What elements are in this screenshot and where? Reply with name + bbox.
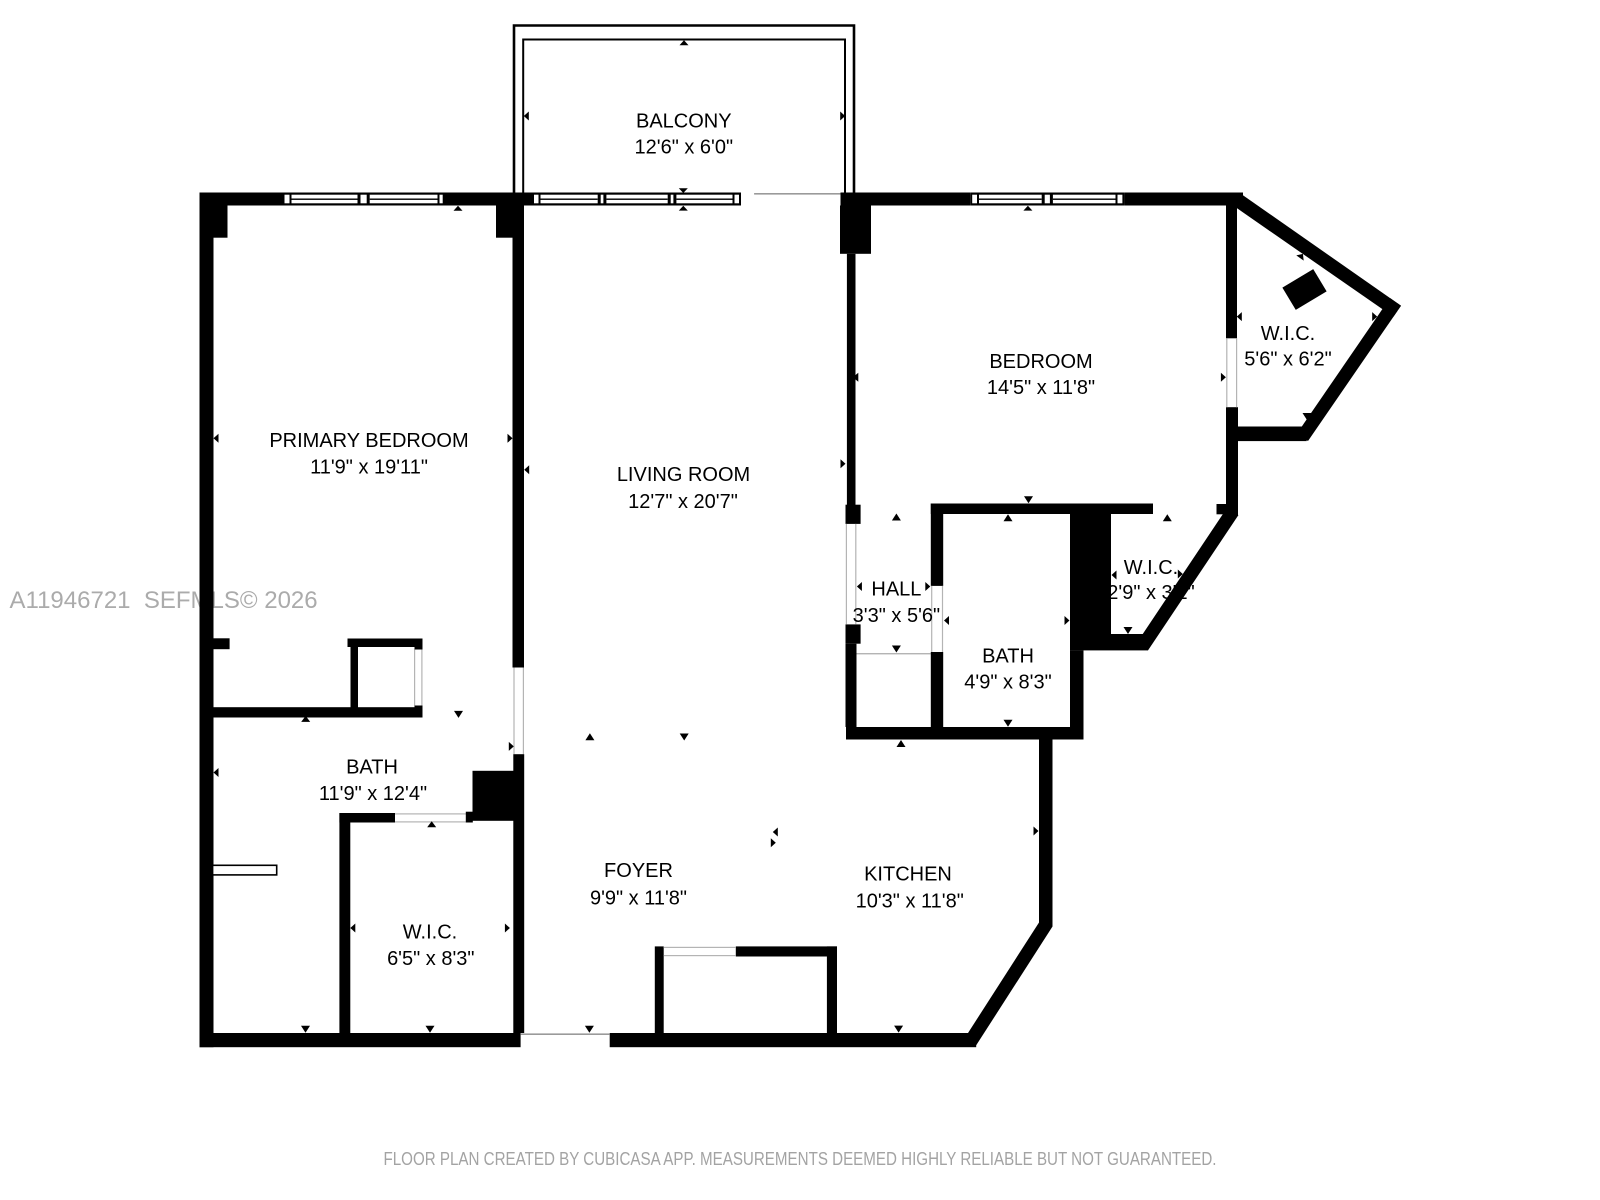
svg-text:PRIMARY BEDROOM: PRIMARY BEDROOM xyxy=(269,430,468,452)
svg-text:10'3" x 11'8": 10'3" x 11'8" xyxy=(856,890,964,912)
svg-text:5'6" x 6'2": 5'6" x 6'2" xyxy=(1244,349,1331,371)
svg-text:HALL: HALL xyxy=(871,579,921,601)
svg-text:W.I.C.: W.I.C. xyxy=(1261,323,1315,345)
svg-text:LIVING ROOM: LIVING ROOM xyxy=(617,464,750,486)
svg-text:KITCHEN: KITCHEN xyxy=(864,864,952,886)
svg-text:11'9" x 19'11": 11'9" x 19'11" xyxy=(310,457,428,479)
svg-text:FOYER: FOYER xyxy=(604,860,673,882)
svg-text:9'9" x 11'8": 9'9" x 11'8" xyxy=(590,887,687,909)
svg-text:A11946721 SEFMLS© 2026: A11946721 SEFMLS© 2026 xyxy=(10,587,318,614)
svg-text:3'3" x 5'6": 3'3" x 5'6" xyxy=(853,605,940,627)
svg-text:BATH: BATH xyxy=(346,757,398,779)
svg-text:4'9" x 8'3": 4'9" x 8'3" xyxy=(964,672,1051,694)
svg-text:6'5" x 8'3": 6'5" x 8'3" xyxy=(387,948,474,970)
svg-text:FLOOR PLAN CREATED BY CUBICASA: FLOOR PLAN CREATED BY CUBICASA APP. MEAS… xyxy=(384,1149,1217,1169)
svg-text:BALCONY: BALCONY xyxy=(636,111,732,133)
svg-text:12'6" x 6'0": 12'6" x 6'0" xyxy=(635,137,734,159)
svg-text:W.I.C.: W.I.C. xyxy=(1124,557,1178,579)
svg-text:W.I.C.: W.I.C. xyxy=(403,922,457,944)
svg-text:12'7" x 20'7": 12'7" x 20'7" xyxy=(628,491,738,513)
svg-text:11'9" x 12'4": 11'9" x 12'4" xyxy=(319,783,427,805)
svg-text:BATH: BATH xyxy=(982,646,1034,668)
svg-text:BEDROOM: BEDROOM xyxy=(989,351,1092,373)
svg-text:14'5" x 11'8": 14'5" x 11'8" xyxy=(987,377,1095,399)
